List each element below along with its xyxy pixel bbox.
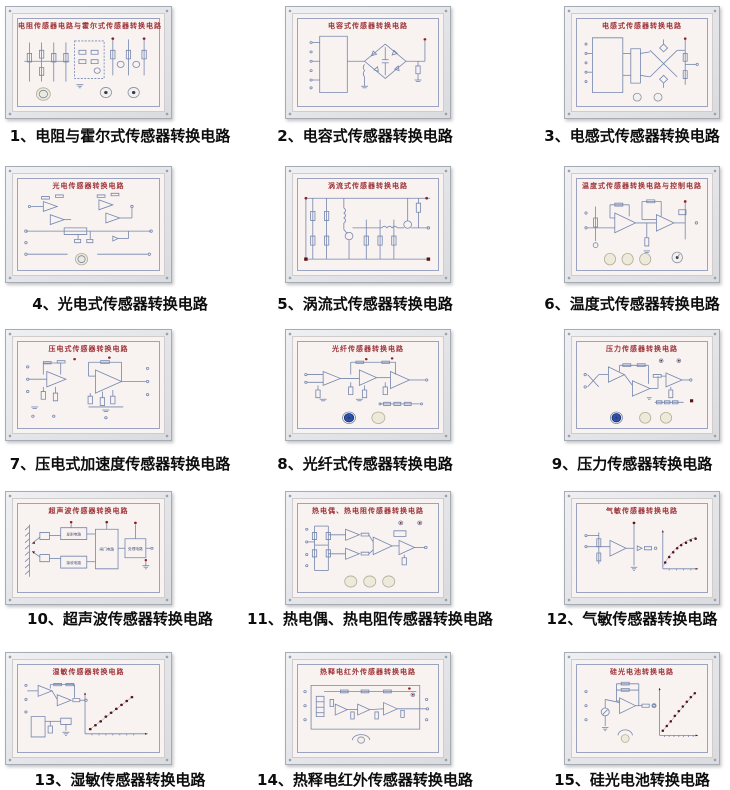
- knob: [343, 412, 356, 424]
- panel-caption: 6、温度式传感器转换电路: [536, 293, 728, 314]
- meter: [672, 252, 682, 263]
- circuit-diagram-capacitive: [299, 30, 437, 105]
- panel-caption: 3、电感式传感器转换电路: [536, 125, 728, 146]
- circuit-diagram-resistor-hall: [19, 30, 158, 105]
- panel-photo-2: 电容式传感器转换电路: [285, 6, 451, 119]
- circuit-diagram-ultrasonic: 发射电路 接收电路 闸门电路 处理电路: [19, 515, 158, 591]
- circuit-diagram-temperature: [578, 190, 706, 269]
- panel-caption: 5、涡流式传感器转换电路: [247, 293, 483, 314]
- knob: [640, 253, 651, 265]
- panel-caption: 2、电容式传感器转换电路: [247, 125, 483, 146]
- panel-photo-11: 热电偶、热电阻传感器转换电路: [285, 491, 451, 605]
- panel-caption: 7、压电式加速度传感器转换电路: [2, 453, 238, 474]
- panel-photo-5: 涡流式传感器转换电路: [285, 166, 451, 283]
- panel-photo-7: 压电式传感器转换电路: [5, 329, 172, 441]
- knob: [640, 412, 651, 423]
- svg-text:处理电路: 处理电路: [128, 546, 143, 551]
- knob: [364, 576, 376, 587]
- panel-photo-12: 气敏传感器转换电路: [564, 491, 720, 605]
- circuit-diagram-photoelectric: [19, 190, 158, 269]
- panel-caption: 1、电阻与霍尔式传感器转换电路: [2, 125, 238, 146]
- panel-caption: 10、超声波传感器转换电路: [2, 608, 238, 629]
- svg-text:闸门电路: 闸门电路: [99, 547, 114, 552]
- panel-photo-3: 电感式传感器转换电路: [564, 6, 720, 119]
- circuit-diagram-fiber-optic: [299, 353, 437, 427]
- meter: [128, 87, 139, 97]
- knob: [383, 576, 395, 587]
- panel-caption: 13、湿敏传感器转换电路: [2, 769, 238, 790]
- knob: [622, 253, 633, 265]
- panel-photo-15: 硅光电池转换电路: [564, 652, 720, 765]
- knob: [75, 253, 87, 265]
- panel-caption: 14、热释电红外传感器转换电路: [247, 769, 483, 790]
- panel-photo-1: 电阻传感器电路与霍尔式传感器转换电路: [5, 6, 172, 119]
- panel-photo-13: 湿敏传感器转换电路: [5, 652, 172, 765]
- svg-text:发射电路: 发射电路: [66, 532, 81, 537]
- circuit-diagram-pyroelectric-ir: [299, 676, 437, 751]
- panel-photo-14: 热释电红外传感器转换电路: [285, 652, 451, 765]
- circuit-diagram-inductive: [578, 30, 706, 105]
- panel-caption: 4、光电式传感器转换电路: [2, 293, 238, 314]
- panel-photo-9: 压力传感器转换电路: [564, 329, 720, 441]
- circuit-diagram-thermocouple: [299, 515, 437, 591]
- panel-caption: 11、热电偶、热电阻传感器转换电路: [247, 608, 483, 629]
- meter: [100, 87, 111, 97]
- panel-photo-10: 超声波传感器转换电路 发射电路 接收电路 闸门电路 处理电路: [5, 491, 172, 605]
- knob: [621, 735, 629, 743]
- panel-photo-8: 光纤传感器转换电路: [285, 329, 451, 441]
- circuit-diagram-humidity: [19, 676, 158, 751]
- knob: [372, 412, 385, 424]
- knob: [610, 412, 622, 424]
- circuit-diagram-pressure: [578, 353, 706, 427]
- circuit-diagram-piezoelectric: [19, 353, 158, 427]
- knob: [345, 576, 357, 587]
- panel-caption: 9、压力传感器转换电路: [536, 453, 728, 474]
- panel-caption: 8、光纤式传感器转换电路: [247, 453, 483, 474]
- knob: [604, 253, 615, 265]
- circuit-diagram-silicon-cell: [578, 676, 706, 751]
- panel-face: 电阻传感器电路与霍尔式传感器转换电路: [12, 13, 165, 112]
- svg-text:接收电路: 接收电路: [66, 560, 81, 565]
- panel-photo-6: 温度式传感器转换电路与控制电路: [564, 166, 720, 283]
- panel-photo-4: 光电传感器转换电路: [5, 166, 172, 283]
- knob: [36, 88, 50, 101]
- circuit-diagram-gas-sensor: [578, 515, 706, 591]
- panel-caption: 15、硅光电池转换电路: [536, 769, 728, 790]
- panel-caption: 12、气敏传感器转换电路: [536, 608, 728, 629]
- knob: [660, 412, 671, 423]
- circuit-diagram-eddy-current: [299, 190, 437, 269]
